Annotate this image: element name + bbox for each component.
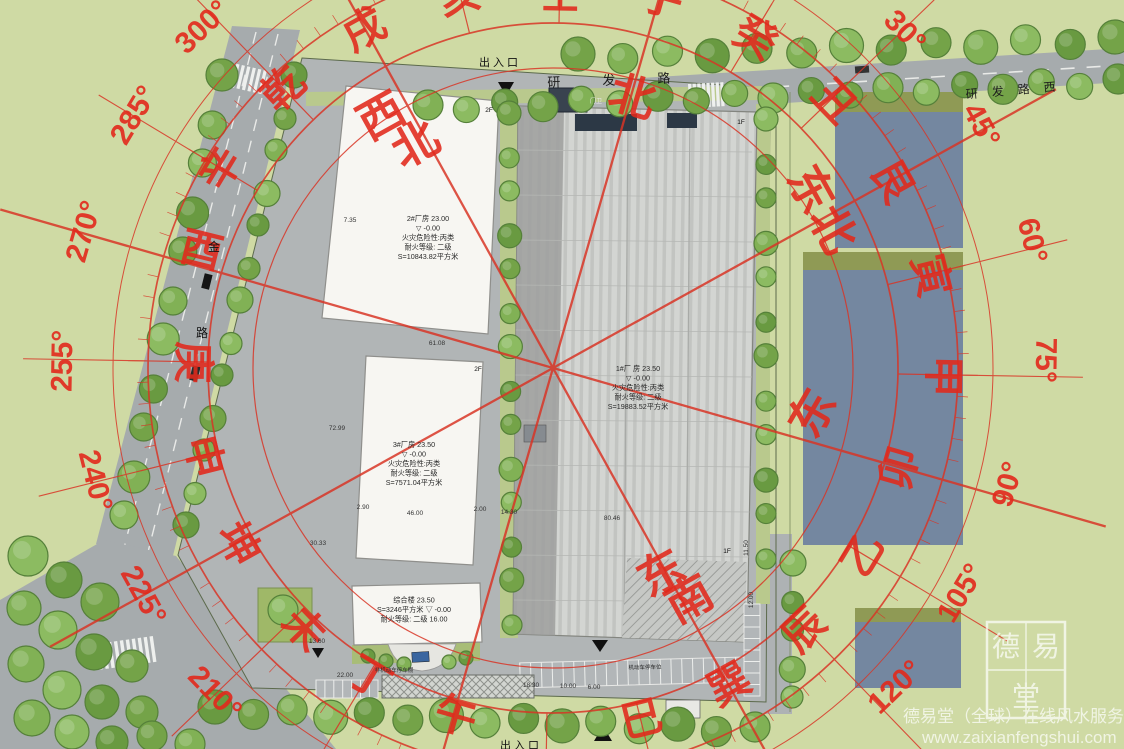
entrance-label-bottom: 出入口 <box>500 738 542 749</box>
bike-shed-label: 非机动车停车棚 <box>375 666 414 674</box>
complex-building-annotation-line-2: 耐火等级: 二级 16.00 <box>380 615 447 624</box>
factory-3-annotation-line-2: 火灾危险性:丙类 <box>388 459 440 468</box>
floor-tag-4: 1F <box>723 548 731 555</box>
factory-2-annotation-line-2: 火灾危险性:丙类 <box>402 233 454 242</box>
rooftop-unit-2 <box>667 113 697 128</box>
entrance-label-top: 出入口 <box>479 55 521 69</box>
ring-char-17: 庚 <box>170 341 218 384</box>
watermark-site-name: 德易堂（全球）在线风水服务网 <box>903 707 1124 726</box>
degree-label-75: 75° <box>1029 337 1063 383</box>
complex-building-annotation-line-1: S=3246平方米 ▽ -0.00 <box>377 605 451 614</box>
ring-char-0: 壬 <box>539 0 582 17</box>
factory-2-annotation-line-1: ▽ -0.00 <box>416 224 440 233</box>
left-road-name-char-2: 路 <box>196 325 208 340</box>
dimension-label-2: 72.99 <box>329 425 346 432</box>
factory-3-annotation-line-3: 耐火等级: 二级 <box>390 469 437 478</box>
dimension-label-4: 46.00 <box>407 510 424 517</box>
factory-1-annotation-line-4: S=19883.52平方米 <box>608 402 669 411</box>
watermark-url: www.zaixianfengshui.com <box>921 728 1117 747</box>
dimension-label-6: 2.00 <box>474 506 487 513</box>
dimension-label-5: 2.90 <box>357 504 370 511</box>
floor-tag-1: 2F <box>485 107 493 114</box>
left-road-name-char-1: 金 <box>208 239 220 254</box>
dimension-label-1: 7.35 <box>344 217 357 224</box>
site-sign <box>412 652 430 663</box>
dimension-label-0: 61.08 <box>429 340 446 347</box>
compass-center <box>550 365 556 371</box>
site-plan-screenshot: 30°45°60°75°90°105°120°210°225°240°255°2… <box>0 0 1124 749</box>
complex-building-annotation-line-0: 综合楼 23.50 <box>393 596 435 605</box>
dimension-label-7: 14.30 <box>501 509 518 516</box>
ring-char-6: 甲 <box>920 355 968 398</box>
factory-2-annotation-line-4: S=10843.82平方米 <box>398 252 459 261</box>
site-plan-svg: 30°45°60°75°90°105°120°210°225°240°255°2… <box>0 0 1124 749</box>
floor-tag-3: 2F <box>474 366 482 373</box>
dimension-label-10: 13.60 <box>309 638 326 645</box>
factory-3-annotation-line-1: ▽ -0.00 <box>402 450 426 459</box>
factory-2-annotation-line-0: 2#厂房 23.00 <box>407 214 449 223</box>
dimension-label-3: 30.33 <box>310 540 327 547</box>
dimension-label-11: 18.30 <box>523 682 540 689</box>
dimension-label-13: 6.00 <box>588 684 601 691</box>
factory-1-annotation-line-3: 耐火等级: 二级 <box>614 393 661 402</box>
gatehouse-label: 门卫 <box>590 97 602 105</box>
floor-tag-2: 1F <box>737 119 745 126</box>
dimension-label-15: 11.50 <box>743 540 750 556</box>
dimension-label-8: 80.46 <box>604 515 621 522</box>
dimension-label-9: 22.00 <box>337 672 354 679</box>
degree-label-255: 255° <box>45 330 79 393</box>
watermark-seal-char-2: 易 <box>1032 631 1060 662</box>
dimension-label-14: 12.00 <box>748 591 755 608</box>
factory-2-annotation-line-3: 耐火等级: 二级 <box>404 243 451 252</box>
factory-1-annotation-line-0: 1#厂 房 23.50 <box>616 364 660 373</box>
factory-3-annotation-line-4: S=7571.04平方米 <box>386 478 443 487</box>
dimension-label-12: 10.00 <box>560 683 577 690</box>
factory-1-annotation-line-1: ▽ -0.00 <box>626 374 650 383</box>
watermark-seal-char-1: 德 <box>992 631 1020 662</box>
factory-1-annotation-line-2: 火灾危险性:丙类 <box>612 383 664 392</box>
factory-3-annotation-line-0: 3#厂房 23.50 <box>393 440 435 449</box>
